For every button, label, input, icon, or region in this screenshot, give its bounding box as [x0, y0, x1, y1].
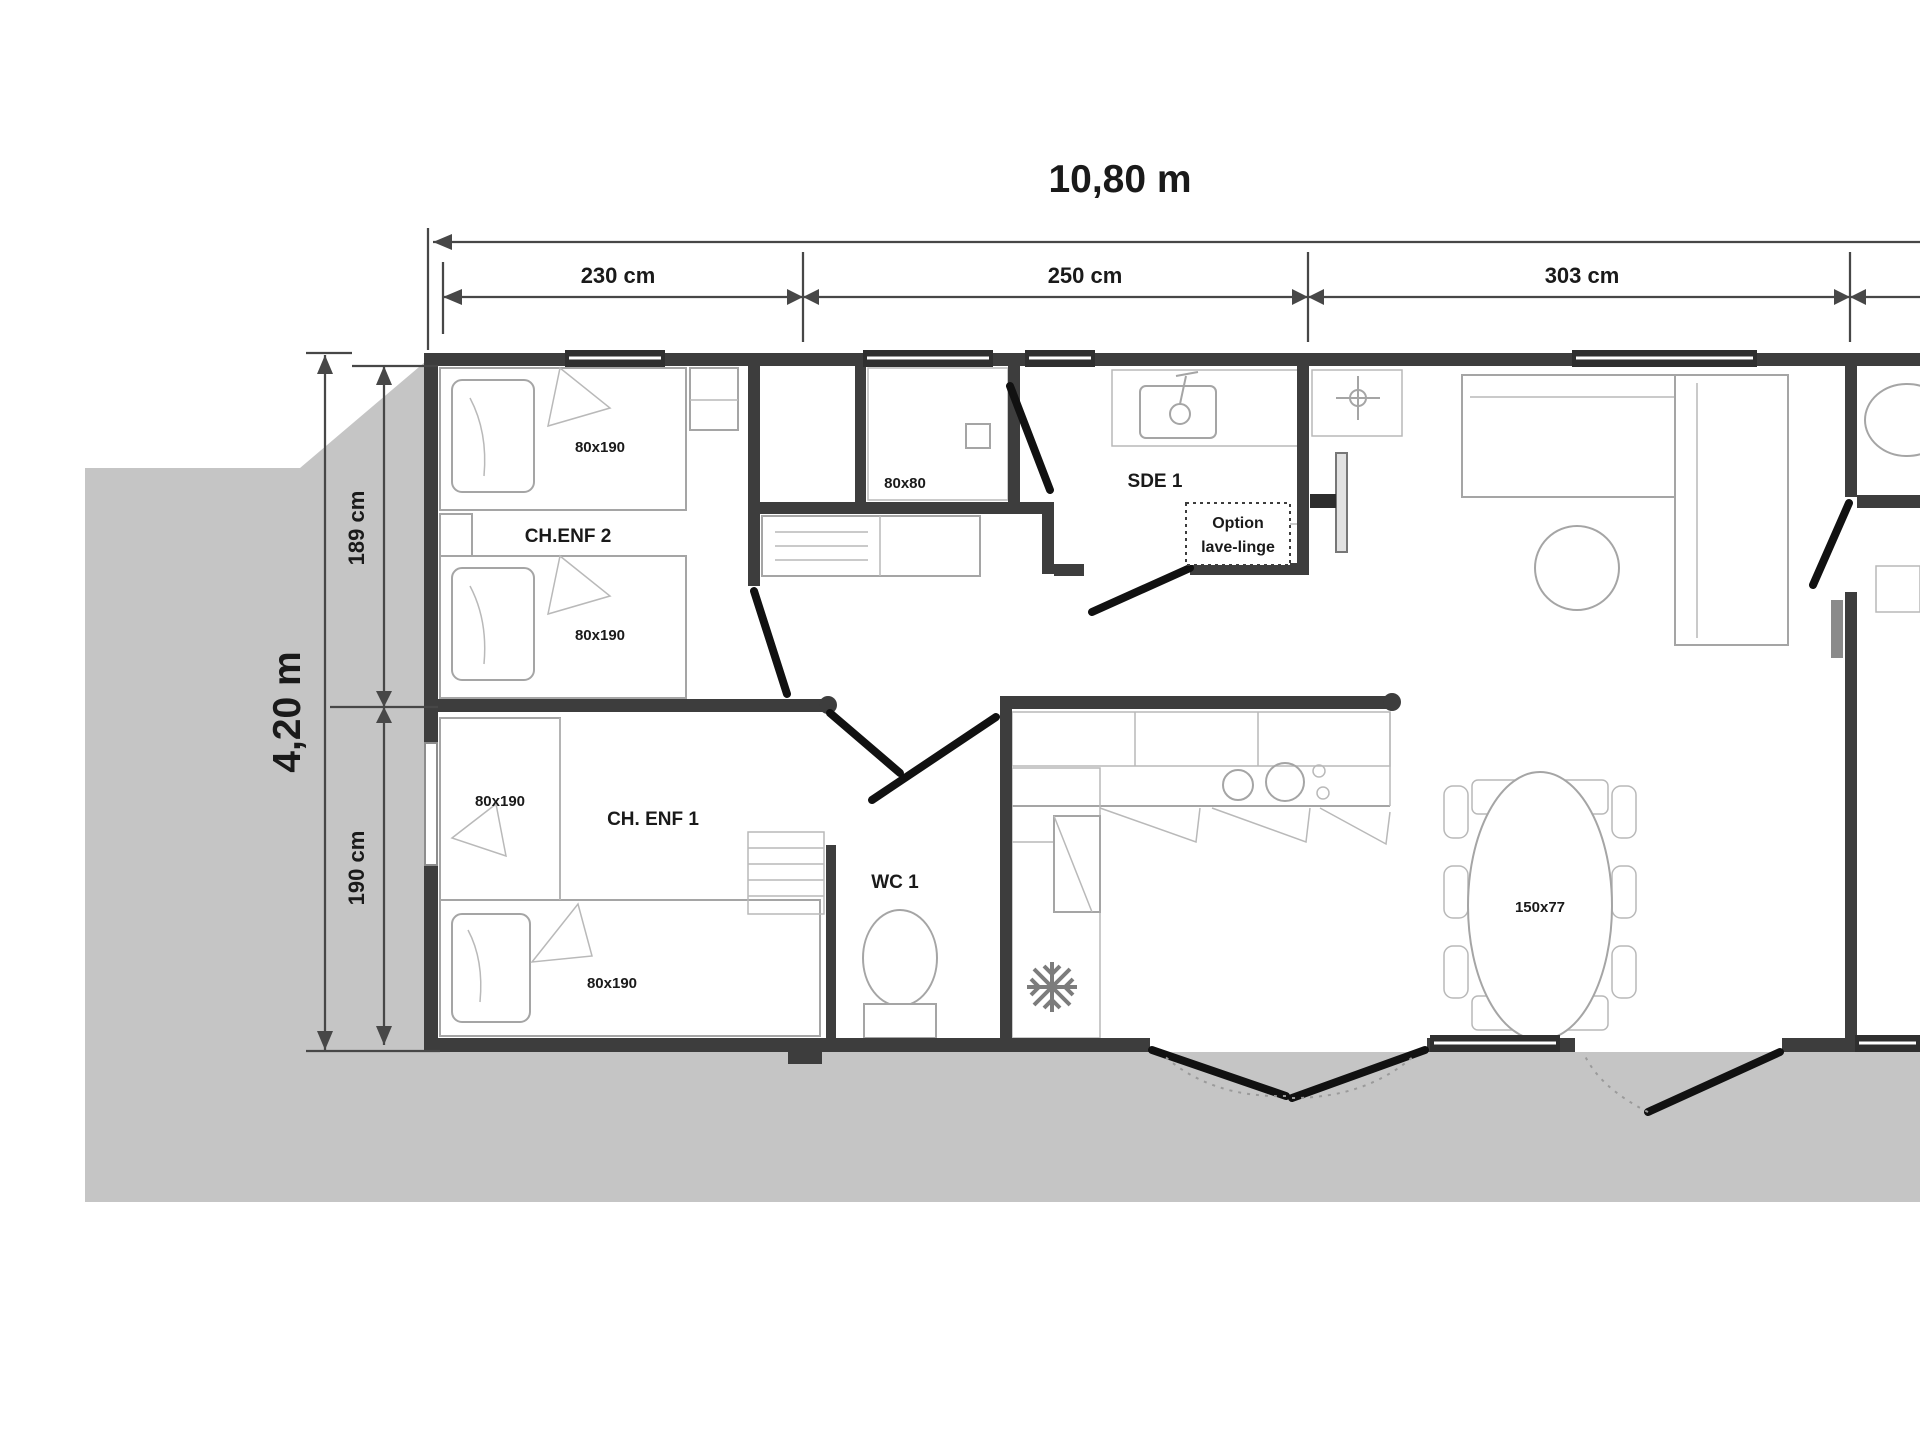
dim-tick-3	[1834, 252, 1866, 342]
window-left	[425, 743, 437, 865]
wall-bedroom2-right	[748, 360, 760, 586]
window-dining	[1430, 1035, 1560, 1052]
wall-left-lower	[424, 865, 438, 1052]
wall-rightroom-divider	[1857, 495, 1920, 508]
label-option-line2: lave-linge	[1201, 539, 1275, 556]
window-shower	[863, 350, 993, 367]
label-option-line1: Option	[1212, 515, 1264, 532]
wall-living-right-lower	[1845, 592, 1857, 1038]
dim-total-width: 10,80 m	[1048, 158, 1191, 201]
floor-plan-drawing: 10,80 m 230 cm 250 cm 303 cm 4,20 m	[0, 0, 1920, 1440]
wall-bottom-1	[424, 1038, 1150, 1052]
hall-cabinet	[762, 516, 980, 576]
wall-wc-left	[826, 845, 836, 1038]
dim-segment-3: 303 cm	[1545, 263, 1620, 288]
dim-tick-2	[1292, 252, 1324, 342]
wall-shower-left	[855, 366, 866, 502]
toilet-icon	[863, 910, 937, 1038]
label-bed2a-size: 80x190	[575, 439, 625, 456]
tv2-icon	[1831, 600, 1843, 658]
label-bed1b-size: 80x190	[587, 975, 637, 992]
label-wc1: WC 1	[871, 872, 919, 893]
wall-left-upper	[424, 353, 438, 743]
label-bed1a-size: 80x190	[475, 793, 525, 810]
floor-plan-page: 10,80 m 230 cm 250 cm 303 cm 4,20 m	[0, 0, 1920, 1440]
window-bedroom2	[565, 350, 665, 367]
label-bed2b-size: 80x190	[575, 627, 625, 644]
wall-hall-top	[748, 502, 1054, 514]
window-right	[1855, 1035, 1920, 1052]
wall-kitchen-top	[1000, 696, 1390, 709]
entry-step	[788, 1052, 822, 1064]
wall-wc-right	[1000, 696, 1012, 1038]
label-bedroom2: CH.ENF 2	[525, 526, 612, 547]
dim-segment-2: 250 cm	[1048, 263, 1123, 288]
window-sde1	[1025, 350, 1095, 367]
option-lave-linge-box: Option lave-linge	[1186, 503, 1290, 565]
wall-sde1-right	[1297, 366, 1309, 574]
label-sde1: SDE 1	[1128, 471, 1183, 492]
label-bedroom1: CH. ENF 1	[607, 809, 699, 830]
fridge-snowflake-icon	[1027, 962, 1077, 1012]
dim-total-height: 4,20 m	[266, 651, 309, 772]
dim-tick-1	[787, 252, 819, 342]
label-shower-size: 80x80	[884, 475, 926, 492]
label-table-size: 150x77	[1515, 899, 1565, 916]
dim-left-segment-1: 189 cm	[344, 491, 369, 566]
window-living-top	[1572, 350, 1757, 367]
dim-left-segment-2: 190 cm	[344, 831, 369, 906]
dim-segment-1: 230 cm	[581, 263, 656, 288]
wall-hall-post	[1042, 514, 1054, 574]
wall-hall-jut	[1054, 564, 1084, 576]
wall-bedroom-divider	[438, 699, 824, 712]
wall-living-right-upper	[1845, 353, 1857, 497]
